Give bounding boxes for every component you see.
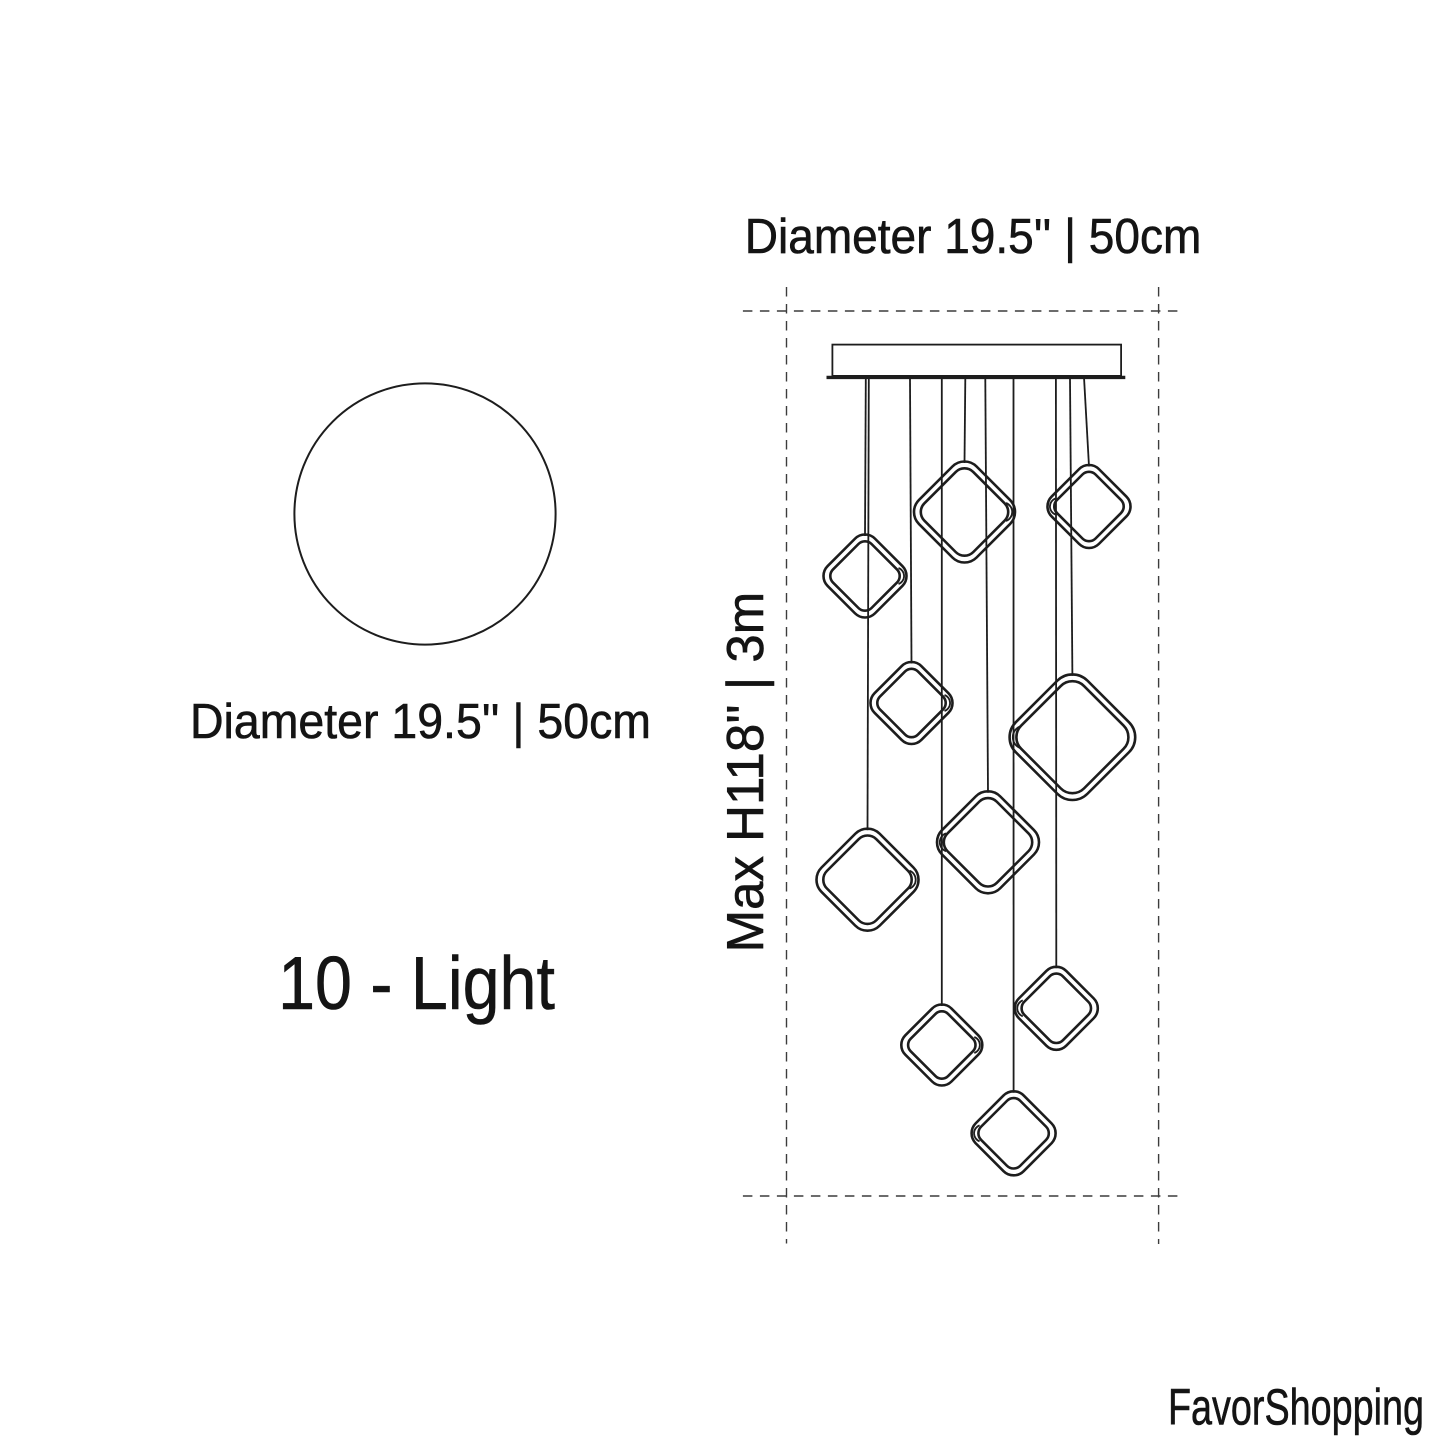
- svg-text:10 - Light: 10 - Light: [278, 941, 555, 1025]
- svg-text:Diameter 19.5'' | 50cm: Diameter 19.5'' | 50cm: [745, 210, 1202, 264]
- svg-text:FavorShopping: FavorShopping: [1168, 1379, 1424, 1436]
- svg-text:Max H118'' | 3m: Max H118'' | 3m: [717, 592, 775, 953]
- svg-text:Diameter 19.5'' | 50cm: Diameter 19.5'' | 50cm: [190, 695, 651, 749]
